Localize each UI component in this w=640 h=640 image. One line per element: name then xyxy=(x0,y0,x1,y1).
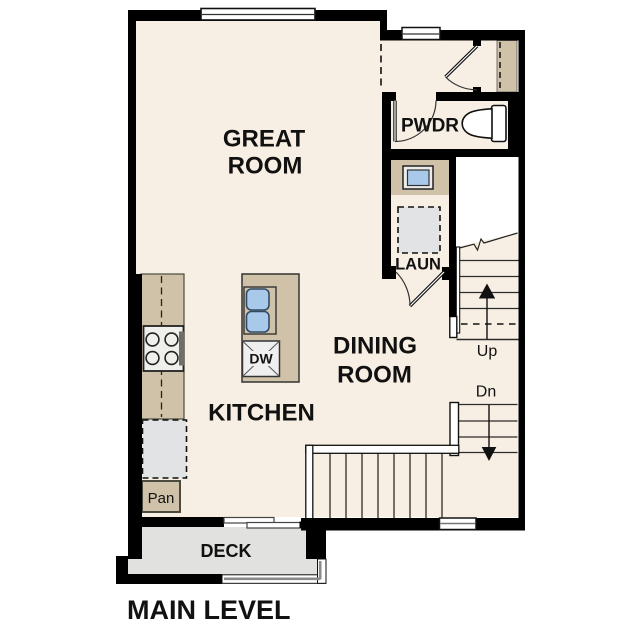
svg-text:ROOM: ROOM xyxy=(228,153,303,180)
svg-text:Pan: Pan xyxy=(148,490,175,507)
svg-text:GREAT: GREAT xyxy=(223,126,306,153)
svg-text:LAUN: LAUN xyxy=(395,256,441,274)
svg-text:DECK: DECK xyxy=(200,541,251,561)
svg-text:Dn: Dn xyxy=(476,384,496,401)
svg-text:Up: Up xyxy=(477,343,498,360)
svg-text:DW: DW xyxy=(249,351,273,367)
svg-text:PWDR: PWDR xyxy=(401,116,459,137)
svg-text:DINING: DINING xyxy=(333,333,417,360)
svg-text:MAIN LEVEL: MAIN LEVEL xyxy=(127,595,291,625)
svg-text:KITCHEN: KITCHEN xyxy=(208,400,315,427)
svg-text:ROOM: ROOM xyxy=(337,362,412,389)
